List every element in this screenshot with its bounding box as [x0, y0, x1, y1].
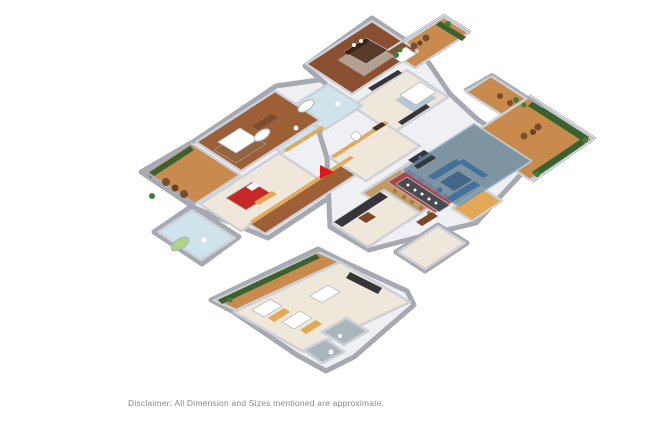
wicker-chair	[411, 43, 418, 50]
master-pillow	[352, 43, 356, 47]
master-pillow	[359, 39, 363, 43]
plant	[393, 52, 399, 58]
plant	[398, 48, 403, 53]
wicker-table	[172, 185, 179, 192]
plant	[534, 171, 540, 177]
dining-plate	[407, 184, 410, 187]
toilet	[336, 102, 341, 107]
dining-chair	[410, 200, 414, 204]
utility-fixture	[338, 334, 342, 338]
foyer-sphere-chair	[352, 132, 361, 141]
living-ottoman	[438, 188, 443, 193]
wicker-chair	[521, 133, 528, 140]
floorplan-canvas: Disclaimer: All Dimension and Sizes ment…	[0, 0, 671, 422]
dining-plate	[414, 189, 417, 192]
dining-chair	[393, 189, 397, 193]
washer	[329, 350, 334, 355]
toilet	[202, 238, 207, 243]
wicker-chair	[162, 178, 170, 186]
dining-chair	[402, 195, 406, 199]
wicker-chair	[497, 93, 503, 99]
disclaimer-text: Disclaimer: All Dimension and Sizes ment…	[128, 398, 384, 408]
floorplan-image	[0, 0, 671, 422]
wicker-table	[418, 41, 423, 46]
plant	[513, 97, 519, 103]
dining-plate	[428, 198, 431, 201]
wicker-chair	[180, 190, 188, 198]
dining-plate	[421, 193, 424, 196]
wicker-table	[530, 129, 536, 135]
plant	[445, 21, 451, 27]
wicker-chair	[535, 124, 542, 131]
wicker-chair	[507, 100, 513, 106]
wicker-chair	[423, 35, 430, 42]
plant	[149, 193, 155, 199]
dining-chair	[419, 206, 423, 210]
plant	[522, 103, 527, 108]
toilet	[294, 126, 299, 131]
plant	[228, 298, 233, 303]
dining-plate	[435, 202, 438, 205]
plant	[582, 137, 588, 143]
